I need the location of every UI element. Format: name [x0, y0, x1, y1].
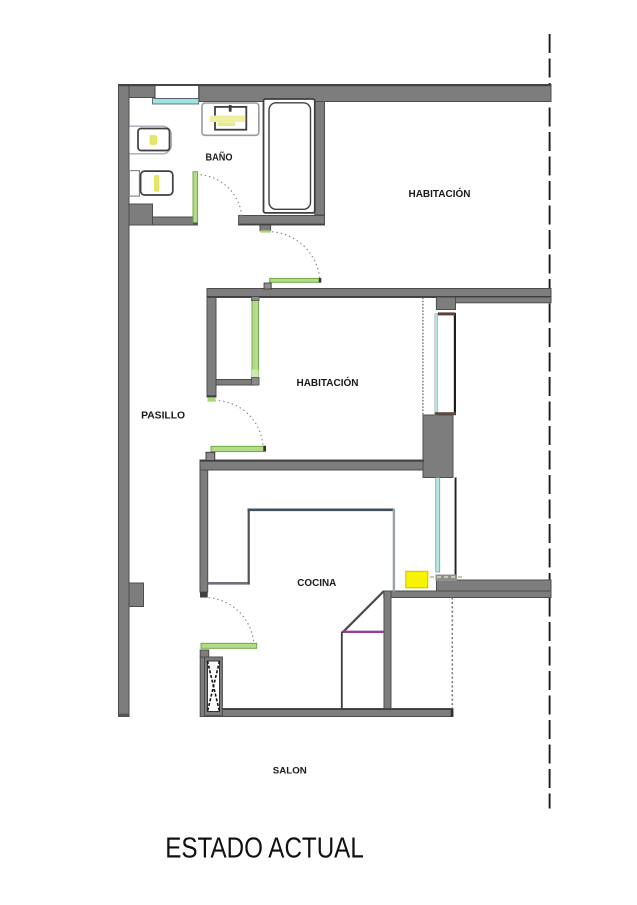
svg-text:PASILLO: PASILLO: [141, 410, 185, 421]
svg-text:ESTADO ACTUAL: ESTADO ACTUAL: [165, 833, 364, 865]
svg-text:HABITACIÓN: HABITACIÓN: [297, 377, 359, 389]
svg-text:HABITACIÓN: HABITACIÓN: [409, 188, 471, 200]
svg-text:COCINA: COCINA: [297, 578, 336, 589]
svg-text:BAÑO: BAÑO: [206, 150, 233, 163]
svg-text:SALON: SALON: [273, 766, 307, 777]
